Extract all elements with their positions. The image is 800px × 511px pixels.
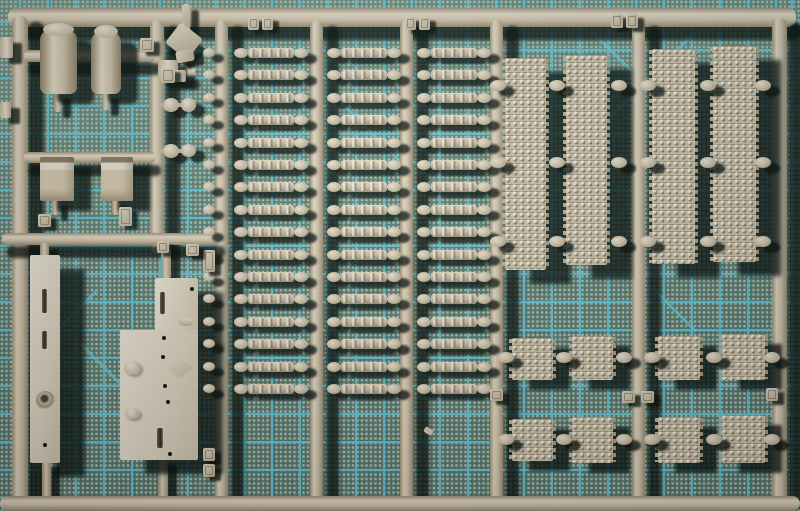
sprue-gate-blob (755, 80, 771, 91)
sprue-gate-blob (294, 115, 308, 125)
sprue-gate-blob (490, 236, 506, 247)
track-link (431, 272, 477, 282)
track-link (431, 93, 477, 103)
sprue-gate-blob (477, 362, 491, 372)
sprue-gate-blob (477, 227, 491, 237)
track-link (341, 70, 387, 80)
sprue-gate-blob (611, 80, 627, 91)
track-link (248, 93, 294, 103)
part-number-tag (405, 17, 416, 30)
sprue-gate-blob (234, 362, 248, 372)
plate-detail-hole (161, 355, 165, 359)
sprue-gate-blob (706, 434, 722, 445)
sprue-gate-blob (203, 339, 215, 348)
part-number-tag (248, 17, 259, 30)
sprue-frame (0, 0, 800, 511)
track-segment (658, 336, 700, 380)
sprue-gate-blob (203, 384, 215, 393)
track-link (431, 138, 477, 148)
sprue-gate-blob (327, 227, 341, 237)
track-link (248, 48, 294, 58)
sprue-gate-blob (294, 160, 308, 170)
plate-detail-oval (178, 318, 194, 326)
sprue-gate-blob (417, 317, 431, 327)
track-link (431, 205, 477, 215)
plate-detail-hole (166, 400, 170, 404)
plate-detail-hole (163, 384, 167, 388)
sprue-gate-blob (203, 272, 215, 281)
sprue-gate-blob (327, 384, 341, 394)
sprue-gate-blob (327, 272, 341, 282)
part-number-tag (119, 207, 132, 226)
part-number-tag (262, 17, 273, 30)
sprue-gate-blob (477, 205, 491, 215)
sprue-gate-blob (327, 317, 341, 327)
sprue-gate-blob (417, 182, 431, 192)
track-link (431, 384, 477, 394)
small-fitting-part (0, 102, 11, 118)
sprue-gate-blob (417, 48, 431, 58)
track-link (431, 317, 477, 327)
stowage-box-part (40, 157, 74, 201)
track-segment (722, 334, 765, 380)
sprue-gate-blob (417, 160, 431, 170)
track-run-long (505, 58, 546, 270)
sprue-stem (112, 199, 119, 215)
sprue-gate-blob (203, 115, 215, 124)
small-fitting-part (0, 37, 13, 58)
sprue-gate-blob (640, 157, 656, 168)
sprue-gate-blob (327, 93, 341, 103)
sprue-gate-blob (417, 93, 431, 103)
sprue-gate-blob (327, 182, 341, 192)
sprue-stem (42, 461, 51, 499)
track-link (341, 294, 387, 304)
sprue-gate-blob (234, 317, 248, 327)
sprue-gate-blob (234, 138, 248, 148)
sprue-gate-blob (417, 272, 431, 282)
sprue-gate-blob (387, 48, 401, 58)
sprue-gate-blob (644, 352, 660, 363)
sprue-gate-blob (234, 160, 248, 170)
track-segment (572, 336, 613, 380)
track-link (431, 48, 477, 58)
sprue-gate-blob (294, 362, 308, 372)
sprue-gate-blob (234, 115, 248, 125)
part-number-tag (38, 214, 51, 227)
sprue-gate-blob (234, 227, 248, 237)
sprue-gate-blob (234, 70, 248, 80)
part-number-tag (626, 14, 638, 28)
sprue-gate-blob (387, 317, 401, 327)
track-link (431, 250, 477, 260)
track-link (248, 115, 294, 125)
part-number-tag (161, 68, 175, 83)
part-number-tag (186, 244, 199, 256)
sprue-gate-blob (294, 250, 308, 260)
sprue-gate-blob (417, 205, 431, 215)
sprue-gate-blob (203, 70, 215, 79)
hull-plate-part (30, 255, 60, 463)
sprue-gate-blob (387, 362, 401, 372)
track-segment (658, 417, 700, 463)
part-number-tag (157, 241, 169, 253)
sprue-rail-vertical (215, 20, 228, 503)
sprue-gate-blob (387, 160, 401, 170)
plate-detail-hole (168, 452, 172, 456)
sprue-gate-blob (387, 339, 401, 349)
sprue-gate-blob (477, 272, 491, 282)
sprue-gate-blob (387, 205, 401, 215)
part-number-tag (203, 448, 215, 461)
mg-mount-part (168, 4, 208, 64)
track-link (248, 362, 294, 372)
track-segment (572, 417, 613, 463)
track-link (431, 160, 477, 170)
sprue-gate-blob (755, 157, 771, 168)
sprue-gate-blob (387, 70, 401, 80)
sprue-gate-blob (387, 250, 401, 260)
sprue-gate-blob (234, 250, 248, 260)
sprue-rail-vertical (12, 16, 28, 504)
sprue-gate-blob (700, 80, 716, 91)
sprue-gate-blob (477, 93, 491, 103)
track-link (341, 317, 387, 327)
track-link (431, 227, 477, 237)
sprue-gate-blob (294, 205, 308, 215)
sprue-gate-blob (327, 138, 341, 148)
sprue-gate-blob (234, 339, 248, 349)
sprue-gate-blob (477, 339, 491, 349)
model-kit-sprue-photo (0, 0, 800, 511)
sprue-gate-blob (234, 272, 248, 282)
sprue-gate-blob (327, 205, 341, 215)
sprue-gate-blob (203, 93, 215, 102)
sprue-gate-blob (549, 157, 565, 168)
sprue-gate-blob (387, 93, 401, 103)
track-segment (512, 419, 553, 461)
sprue-gate-blob (700, 157, 716, 168)
part-number-tag (140, 38, 154, 52)
track-link (248, 272, 294, 282)
sprue-gate-blob (755, 236, 771, 247)
sprue-gate-blob (203, 362, 215, 371)
sprue-gate-blob (294, 272, 308, 282)
sprue-gate-blob (294, 317, 308, 327)
sprue-gate-blob (417, 115, 431, 125)
track-link (248, 182, 294, 192)
sprue-gate-blob (294, 70, 308, 80)
track-link (341, 138, 387, 148)
track-link (341, 250, 387, 260)
track-link (248, 294, 294, 304)
plate-detail-hole (190, 287, 194, 291)
track-link (248, 250, 294, 260)
sprue-gate-blob (294, 93, 308, 103)
track-link (341, 115, 387, 125)
sprue-stem (52, 199, 59, 215)
sprue-gate-blob (611, 157, 627, 168)
sprue-gate-blob (417, 294, 431, 304)
sprue-gate-blob (764, 352, 780, 363)
part-number-tag (611, 14, 623, 28)
sprue-gate-blob (327, 362, 341, 372)
track-segment (722, 415, 765, 463)
sprue-gate-blob (203, 205, 215, 214)
plate-detail-hole (43, 443, 47, 447)
sprue-gate-blob (417, 362, 431, 372)
sprue-gate-blob (764, 434, 780, 445)
sprue-gate-blob (294, 294, 308, 304)
sprue-stem (102, 92, 110, 110)
sprue-gate-blob (234, 182, 248, 192)
sprue-gate-blob (234, 384, 248, 394)
sprue-stem (54, 92, 62, 112)
sprue-gate-blob (616, 352, 632, 363)
sprue-gate-blob (203, 182, 215, 191)
sprue-gate-blob (327, 115, 341, 125)
track-link (341, 205, 387, 215)
track-link (431, 70, 477, 80)
sprue-gate-blob (490, 157, 506, 168)
part-number-tag (203, 250, 215, 272)
sprue-gate-blob (234, 294, 248, 304)
sprue-rail-vertical (400, 20, 413, 503)
plate-detail-slot (42, 289, 47, 313)
sprue-gate-blob (417, 70, 431, 80)
track-link (248, 339, 294, 349)
track-link (431, 362, 477, 372)
sprue-gate-blob (611, 236, 627, 247)
sprue-rail-vertical (632, 20, 645, 503)
plate-detail-ring (36, 391, 55, 410)
sprue-gate-blob (477, 138, 491, 148)
sprue-gate-blob (417, 250, 431, 260)
sprue-gate-blob (549, 236, 565, 247)
sprue-gate-blob (387, 272, 401, 282)
track-run-long (652, 49, 695, 264)
plastic-speck (423, 426, 434, 436)
sprue-gate-blob (203, 48, 215, 57)
sprue-gate-blob (387, 138, 401, 148)
fuel-drum-part (40, 30, 77, 94)
sprue-gate-blob (706, 352, 722, 363)
sprue-gate-blob (644, 434, 660, 445)
part-number-tag (203, 464, 215, 477)
sprue-gate-blob (294, 182, 308, 192)
part-number-tag (419, 17, 430, 30)
track-link (248, 70, 294, 80)
sprue-gate-blob (417, 227, 431, 237)
plate-detail-slot (157, 428, 163, 448)
sprue-gate-blob (234, 93, 248, 103)
sprue-gate-blob (294, 138, 308, 148)
sprue-gate-blob (387, 182, 401, 192)
sprue-stem (158, 458, 168, 498)
track-link (341, 160, 387, 170)
track-link (248, 227, 294, 237)
plate-detail-cap (125, 408, 140, 419)
track-link (341, 227, 387, 237)
sprue-gate-blob (477, 115, 491, 125)
plate-detail-slot (42, 331, 47, 349)
track-link (341, 384, 387, 394)
hull-plate-part (120, 330, 198, 460)
sprue-gate-blob (477, 48, 491, 58)
sprue-gate-blob (387, 227, 401, 237)
sprue-gate-blob (234, 205, 248, 215)
track-segment (512, 338, 553, 380)
track-link (341, 362, 387, 372)
sprue-gate-blob (234, 48, 248, 58)
sprue-gate-blob (294, 339, 308, 349)
sprue-gate-blob (616, 434, 632, 445)
track-link (341, 272, 387, 282)
track-link (248, 384, 294, 394)
sprue-gate-blob (327, 250, 341, 260)
track-link (341, 93, 387, 103)
sprue-gate-blob (556, 352, 572, 363)
track-link (248, 205, 294, 215)
track-link (248, 317, 294, 327)
sprue-rail-horizontal (0, 496, 800, 511)
sprue-gate-blob (490, 80, 506, 91)
sprue-gate-blob (417, 384, 431, 394)
sprue-gate-blob (387, 115, 401, 125)
sprue-gate-blob (477, 250, 491, 260)
part-number-tag (490, 389, 503, 401)
sprue-gate-blob (327, 339, 341, 349)
mg-mount-piece (175, 49, 195, 64)
sprue-gate-blob (327, 160, 341, 170)
track-link (431, 294, 477, 304)
sprue-gate-blob (477, 70, 491, 80)
sprue-gate-blob (294, 384, 308, 394)
part-number-tag (622, 391, 635, 403)
track-link (431, 115, 477, 125)
part-number-tag (641, 391, 654, 403)
plate-detail-diamond (165, 358, 193, 378)
track-link (341, 339, 387, 349)
fuel-drum-part (91, 32, 121, 94)
sprue-gate-blob (203, 294, 215, 303)
sprue-gate-blob (498, 434, 514, 445)
sprue-gate-blob (294, 48, 308, 58)
sprue-gate-blob (387, 384, 401, 394)
sprue-gate-blob (477, 384, 491, 394)
sprue-gate-blob (327, 48, 341, 58)
stowage-box-part (101, 157, 133, 201)
track-run-long (713, 46, 756, 262)
sprue-rail-vertical (772, 18, 787, 503)
track-link (341, 48, 387, 58)
dome-knob-part (181, 98, 196, 112)
plate-detail-hole (162, 336, 166, 340)
track-run-long (566, 55, 607, 265)
sprue-gate-blob (477, 317, 491, 327)
plate-detail-cap (124, 361, 141, 375)
track-link (431, 182, 477, 192)
sprue-gate-blob (700, 236, 716, 247)
sprue-gate-blob (327, 294, 341, 304)
sprue-gate-blob (387, 294, 401, 304)
dome-knob-part (181, 144, 196, 157)
sprue-gate-blob (203, 160, 215, 169)
track-link (248, 160, 294, 170)
sprue-gate-blob (477, 294, 491, 304)
plate-detail-slot (160, 292, 165, 314)
sprue-gate-blob (640, 236, 656, 247)
sprue-rail-vertical (310, 20, 323, 503)
sprue-gate-blob (477, 182, 491, 192)
sprue-gate-blob (498, 352, 514, 363)
track-link (431, 339, 477, 349)
hull-plate-part (155, 278, 198, 334)
sprue-gate-blob (640, 80, 656, 91)
track-link (341, 182, 387, 192)
track-link (248, 138, 294, 148)
sprue-gate-blob (477, 160, 491, 170)
sprue-gate-blob (549, 80, 565, 91)
part-number-tag (766, 388, 778, 401)
sprue-gate-blob (556, 434, 572, 445)
sprue-gate-blob (203, 317, 215, 326)
sprue-gate-blob (203, 138, 215, 147)
sprue-gate-blob (327, 70, 341, 80)
sprue-gate-blob (294, 227, 308, 237)
sprue-gate-blob (417, 138, 431, 148)
sprue-gate-blob (417, 339, 431, 349)
